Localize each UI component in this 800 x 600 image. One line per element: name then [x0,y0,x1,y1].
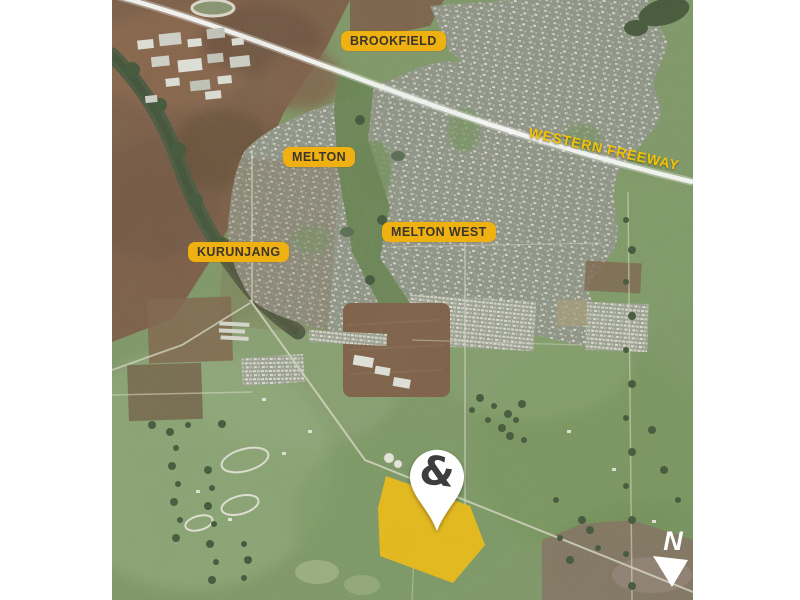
aerial-basemap: & N [112,0,693,600]
north-letter: N [663,526,683,556]
suburb-label-melton: MELTON [283,147,355,167]
suburb-label-melton-west: MELTON WEST [382,222,496,242]
suburb-label-kurunjang: KURUNJANG [188,242,289,262]
pin-ampersand-symbol: & [417,447,457,497]
suburb-label-brookfield: BROOKFIELD [341,31,446,51]
advert-canvas: & N BROOKFIELD MELTON MELTON WEST KURUNJ… [0,0,800,600]
aerial-map: & N BROOKFIELD MELTON MELTON WEST KURUNJ… [112,0,693,600]
